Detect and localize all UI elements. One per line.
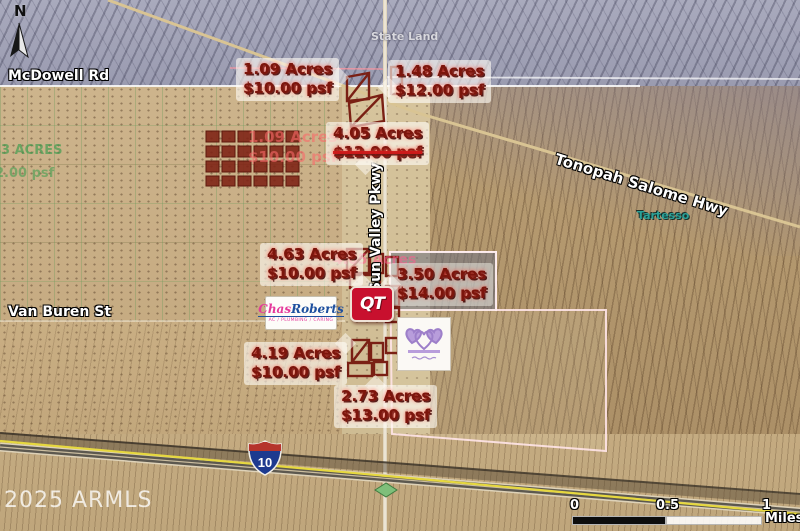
interstate-10-shield: 10 [248,440,282,480]
scale-bar: 0 0.5 1 Miles [560,496,798,530]
qt-letters: QT [360,294,384,314]
north-arrow-icon [6,20,32,60]
parcel-label-148-acres: 1.48 Acres$12.00 psf [388,60,491,103]
armls-watermark: 2025 ARMLS [4,488,153,513]
scale-unit: Miles [765,511,800,526]
interchange-diamond-icon [375,483,397,497]
ghost-label-2psf: 2.00 psf [0,166,54,181]
north-label: N [14,2,32,20]
interstate-number: 10 [258,455,272,470]
chas-roberts-wordmark: ChasRoberts [258,303,343,317]
parcel-label-273-acres: 2.73 Acres$13.00 psf [334,385,437,428]
scale-tick-half: 0.5 [656,498,679,513]
chas-roberts-tagline: AC / PLUMBING / CARING [269,318,334,323]
railroad-track [0,433,800,494]
place-label-state-land: State Land [371,30,438,43]
parcel-label-350-acres: 3.50 Acres$14.00 psf [390,263,493,306]
scale-bar-black-segment [572,516,666,525]
aerial-map: 1.09 Acres $10.00 psf 4.05 Acres 43 ACRE… [0,0,800,531]
quiktrip-logo: QT [350,286,394,322]
road-label-van-buren: Van Buren St [8,304,111,320]
chas-roberts-logo: ChasRoberts AC / PLUMBING / CARING [265,296,337,330]
scale-tick-0: 0 [570,498,579,513]
parcel-label-463-acres: 4.63 Acres$10.00 psf [260,243,363,286]
parcel-label-419-acres: 4.19 Acres$10.00 psf [244,342,347,385]
ghost-label-43acres: 43 ACRES [0,143,62,158]
road-label-mcdowell: McDowell Rd [8,68,109,84]
road-label-sun-valley: Sun Valley Pkwy [368,163,384,292]
parcel-label-109-acres: 1.09 Acres$10.00 psf [236,58,339,101]
heart-crown-icon [402,325,446,363]
scale-bar-white-segment [666,516,762,525]
north-arrow: N [6,2,32,64]
ghost-label-109: 1.09 Acres $10.00 psf [248,128,337,167]
place-label-tartesso: Tartesso [637,209,689,222]
parcel-label-405-acres: 4.05 Acres $12.00 psf [326,122,429,165]
heart-crown-logo [397,317,451,371]
